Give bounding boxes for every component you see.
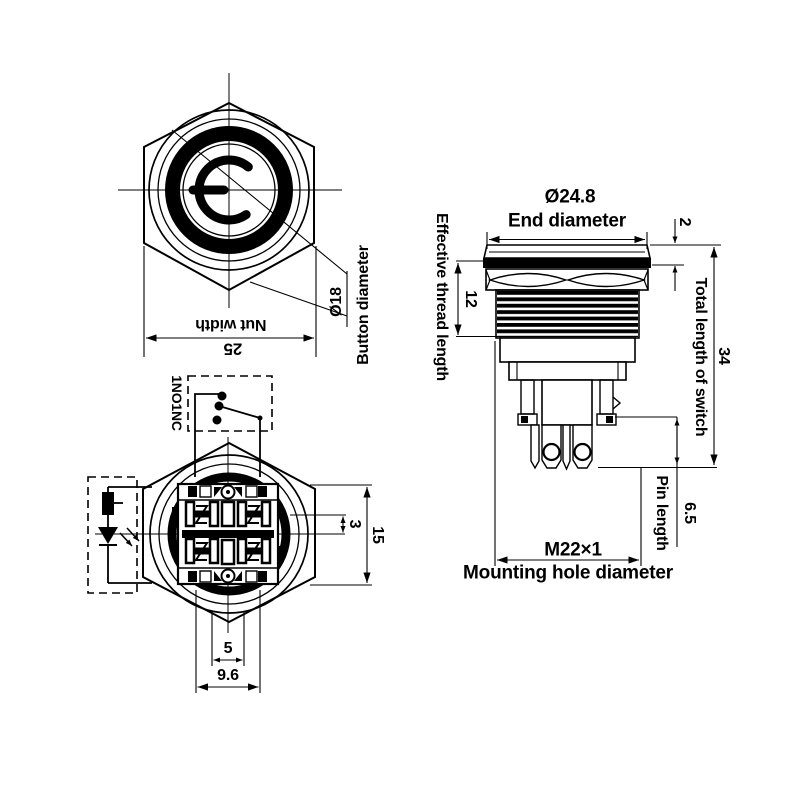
total-length-value: 34 (715, 347, 731, 364)
contact-configuration-label: 1NO1NC (170, 375, 184, 431)
thread-hatching (497, 291, 638, 337)
mounting-hole-label: Mounting hole diameter (463, 564, 673, 583)
terminal-block-value: 15 (369, 526, 385, 543)
total-length-label: Total length of switch (692, 278, 708, 437)
pin-length-value: 6.5 (681, 502, 697, 524)
pin-length-label: Pin length (653, 475, 669, 550)
button-diameter-value: Ø18 (329, 287, 345, 317)
nut-width-value: 25 (224, 341, 243, 358)
end-diameter-value: Ø24.8 (545, 188, 596, 207)
nut-width-label: Nut width (195, 316, 266, 332)
head-height-value: 2 (676, 218, 692, 227)
pin-spacing-large-value: 9.6 (217, 668, 239, 684)
effective-thread-value: 12 (462, 290, 478, 307)
hex-nut-side (486, 269, 648, 290)
terminal-block (172, 484, 284, 584)
drawing-linework (0, 0, 800, 800)
end-diameter-label: End diameter (508, 212, 626, 231)
terminal-offset-value: 3 (346, 520, 362, 529)
pin-spacing-small-value: 5 (224, 641, 233, 657)
button-diameter-label: Button diameter (356, 245, 372, 365)
mounting-hole-value: M22×1 (544, 541, 602, 560)
technical-drawing-canvas: Nut width 25 Ø18 Button diameter 1NO1NC … (0, 0, 800, 800)
effective-thread-label: Effective thread length (433, 213, 449, 381)
terminal-pins (531, 425, 592, 469)
front-view (118, 73, 347, 357)
contact-schematic (188, 376, 272, 477)
